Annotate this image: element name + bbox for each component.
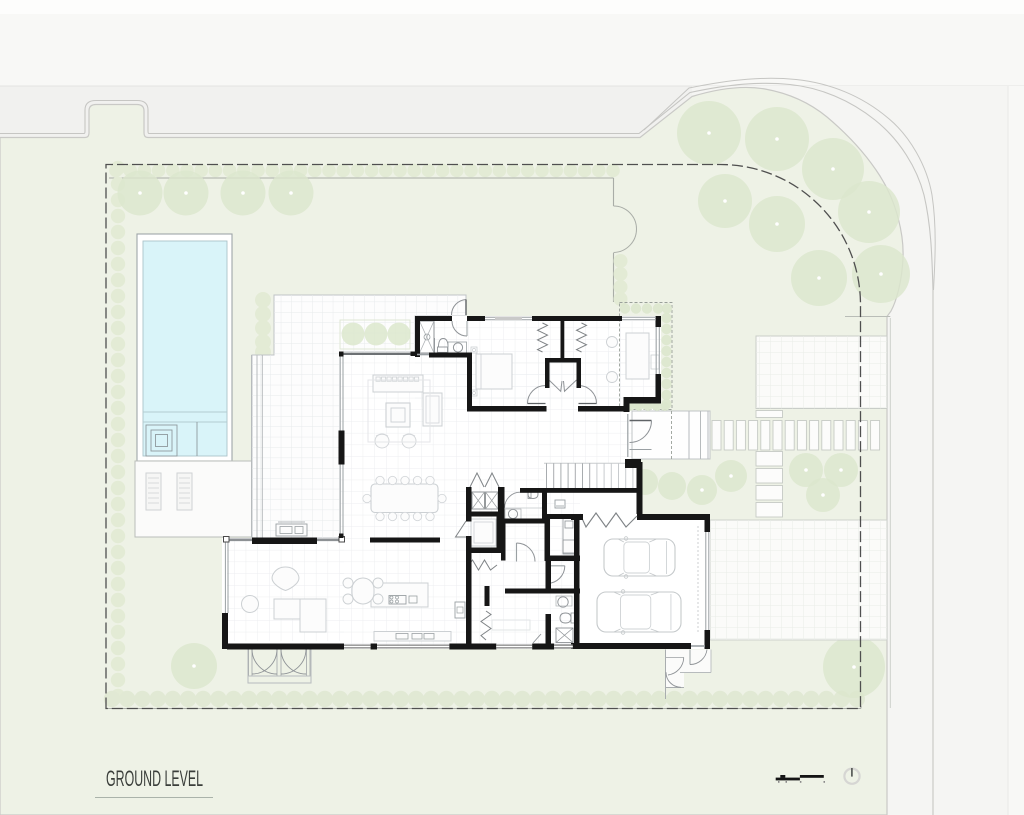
svg-text:GROUND LEVEL: GROUND LEVEL bbox=[106, 766, 203, 791]
